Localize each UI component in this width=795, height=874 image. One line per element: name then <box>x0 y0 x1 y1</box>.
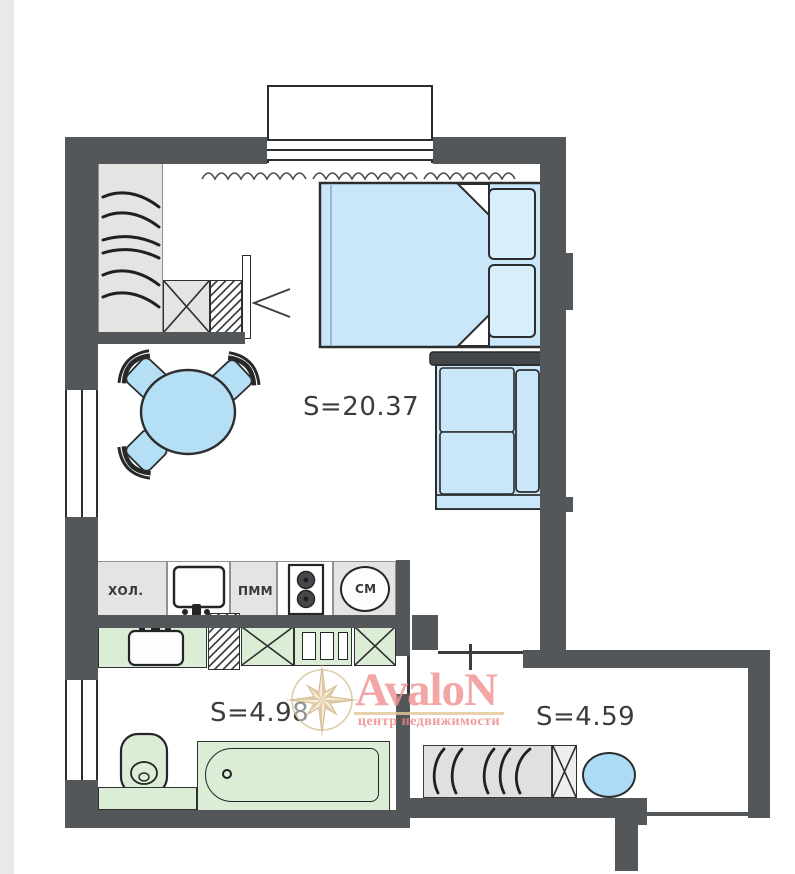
sofa-cushion <box>440 432 514 494</box>
crossed-cabinet-bath-1 <box>241 626 294 666</box>
cabinet-slat <box>302 632 316 660</box>
brand-underline <box>354 712 504 715</box>
pillow-icon <box>489 265 535 337</box>
wall-left-upper <box>65 164 98 390</box>
bathroom-door-jamb-mark <box>407 656 410 694</box>
hall-doorway-threshold <box>438 651 523 654</box>
wall-entry-jamb <box>637 798 647 825</box>
wall-corridor-block <box>412 615 438 650</box>
bathtub-drain-icon <box>222 769 232 779</box>
dining-set <box>95 340 295 490</box>
brand-text: AvaloN <box>355 663 497 717</box>
living-room-area-label: S=20.37 <box>303 392 419 422</box>
wall-kitchen-bath <box>96 615 410 628</box>
door-swing-icon <box>252 286 292 320</box>
kitchen-sink-icon <box>170 564 228 618</box>
window-left-2 <box>65 680 98 780</box>
wall-right-bump <box>566 497 573 512</box>
hanger-icons-closet <box>99 185 165 315</box>
entry-door-threshold <box>647 812 748 816</box>
hall-doorway-jamb-mark <box>469 644 472 670</box>
wall-hall-top <box>523 650 770 668</box>
washing-machine-label: СМ <box>355 582 376 596</box>
wall-bath-right-lower <box>396 694 410 810</box>
duct-hatch-closet <box>210 280 242 333</box>
wall-closet-stub <box>96 332 245 344</box>
cabinet-slat <box>320 632 334 660</box>
cabinet-slat <box>338 632 348 660</box>
stove-icon <box>287 563 325 616</box>
crossed-cabinet-closet <box>163 280 210 333</box>
slatted-cabinet <box>294 626 352 666</box>
wall-right-bump <box>566 253 573 310</box>
wall-hall-bottom <box>408 798 647 818</box>
page-edge-strip <box>0 0 14 874</box>
fridge-label: ХОЛ. <box>108 584 143 598</box>
wall-bottom-stub <box>615 818 638 871</box>
hanger-icons-wardrobe <box>428 746 548 796</box>
dishwasher-label: ПММ <box>238 584 273 598</box>
door-leaf <box>242 255 251 339</box>
crossed-cabinet-hallway <box>552 745 577 798</box>
wall-left-mid <box>65 517 98 680</box>
window-left-1 <box>65 390 98 517</box>
sofa-backrest <box>430 352 548 365</box>
wall-top-right <box>433 137 566 164</box>
wall-right-main <box>540 164 566 652</box>
sofa-cushion <box>440 368 514 432</box>
bathtub <box>197 741 390 812</box>
wall-hall-right <box>748 668 770 818</box>
bathroom-shelf <box>98 787 197 810</box>
dining-table <box>141 370 235 454</box>
brand-tagline: центр недвижимости <box>347 714 511 730</box>
wall-bath-bottom <box>65 810 410 828</box>
bathroom-area-label: S=4.98 <box>210 698 309 728</box>
wall-top-left <box>65 137 267 164</box>
pouf <box>582 752 636 798</box>
pillow-icon <box>489 189 535 259</box>
sofa-armrest <box>516 370 539 492</box>
balcony-window <box>267 139 433 161</box>
sofa <box>428 350 550 512</box>
bed <box>318 181 544 349</box>
wall-bath-right-upper <box>396 560 410 656</box>
crossed-cabinet-bath-2 <box>354 626 396 666</box>
hallway-area-label: S=4.59 <box>536 702 635 732</box>
floor-plan: ХОЛ. ПММ СМ <box>0 0 795 874</box>
